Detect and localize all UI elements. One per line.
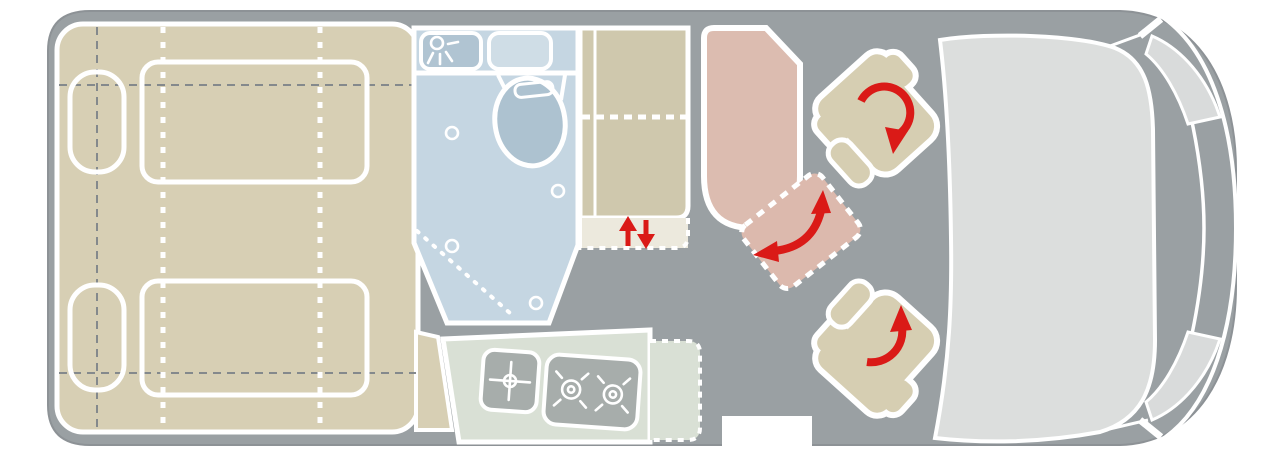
stove (543, 354, 642, 430)
entry-door-opening (722, 416, 812, 447)
shower-control-box (421, 33, 481, 69)
lift-cabinet (580, 218, 688, 248)
kitchen-worktop-extension (650, 341, 700, 440)
bathroom (414, 28, 578, 323)
rear-bed-area (57, 24, 452, 432)
floorplan-canvas (0, 0, 1280, 476)
cab-windshield (935, 36, 1155, 442)
kitchen (443, 330, 700, 442)
sink (480, 349, 540, 413)
floorplan-svg (0, 0, 1280, 476)
wardrobe (578, 28, 688, 249)
bathroom-shelf (489, 33, 551, 69)
bed-area-floor (57, 24, 418, 432)
